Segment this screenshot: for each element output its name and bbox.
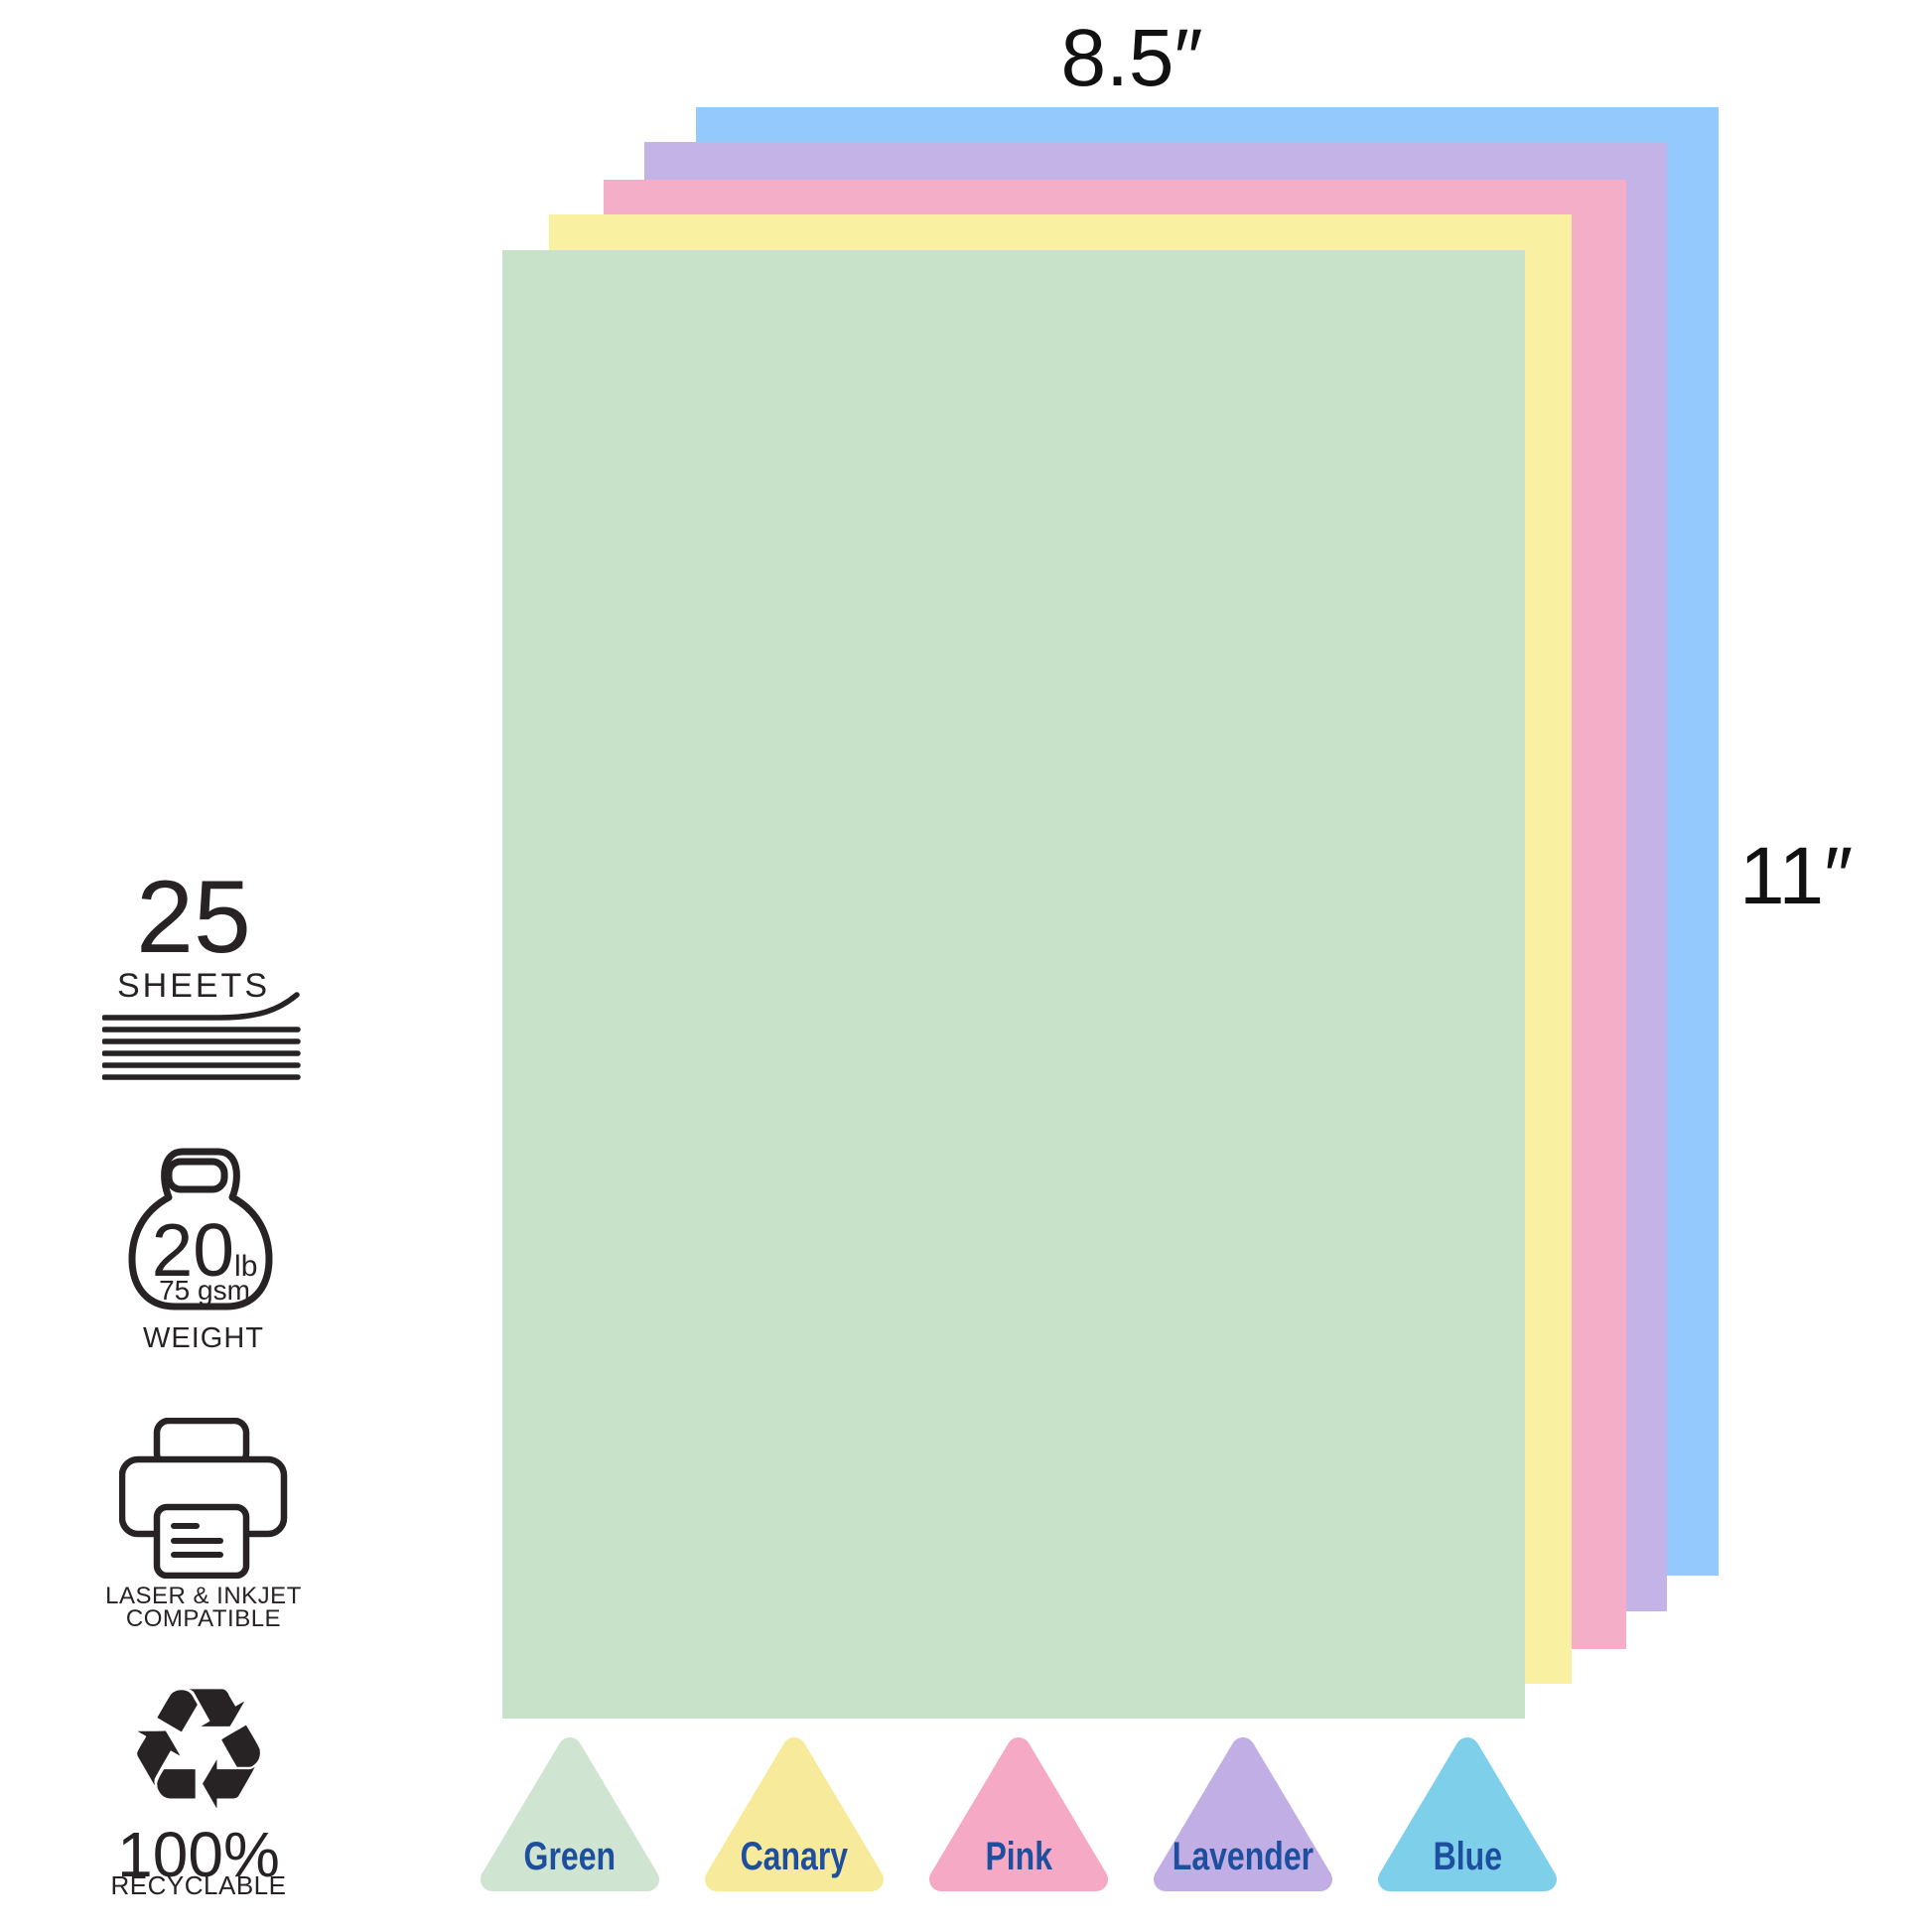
swatch-pink: Pink xyxy=(928,1733,1109,1894)
height-dimension-label: 11″ xyxy=(1739,836,1853,917)
recycle-icon: ♻ xyxy=(89,1666,308,1835)
swatch-lavender: Lavender xyxy=(1153,1733,1333,1894)
swatch-blue: Blue xyxy=(1377,1733,1558,1894)
swatch-label: Green xyxy=(480,1837,660,1876)
weight-label: WEIGHT xyxy=(104,1324,303,1353)
printer-compatibility-line2: COMPATIBLE xyxy=(84,1607,323,1631)
recyclable-label: RECYCLABLE xyxy=(84,1872,313,1898)
sheet-count-value: 25 xyxy=(84,866,303,969)
swatch-label: Lavender xyxy=(1153,1837,1333,1876)
paper-sheet-green xyxy=(502,250,1525,1719)
swatch-canary: Canary xyxy=(704,1733,885,1894)
product-infographic: 8.5″ 11″ 25 SHEETS 20lb 75 gsm WEIGHT xyxy=(0,0,1932,1932)
width-dimension-label: 8.5″ xyxy=(1003,18,1261,99)
swatch-label: Pink xyxy=(928,1837,1109,1876)
printer-icon xyxy=(119,1418,288,1579)
swatch-label: Canary xyxy=(704,1837,885,1876)
sheet-stack-icon xyxy=(102,988,301,1082)
weight-gsm: 75 gsm xyxy=(121,1277,288,1305)
swatch-label: Blue xyxy=(1377,1837,1558,1876)
swatch-green: Green xyxy=(480,1733,660,1894)
